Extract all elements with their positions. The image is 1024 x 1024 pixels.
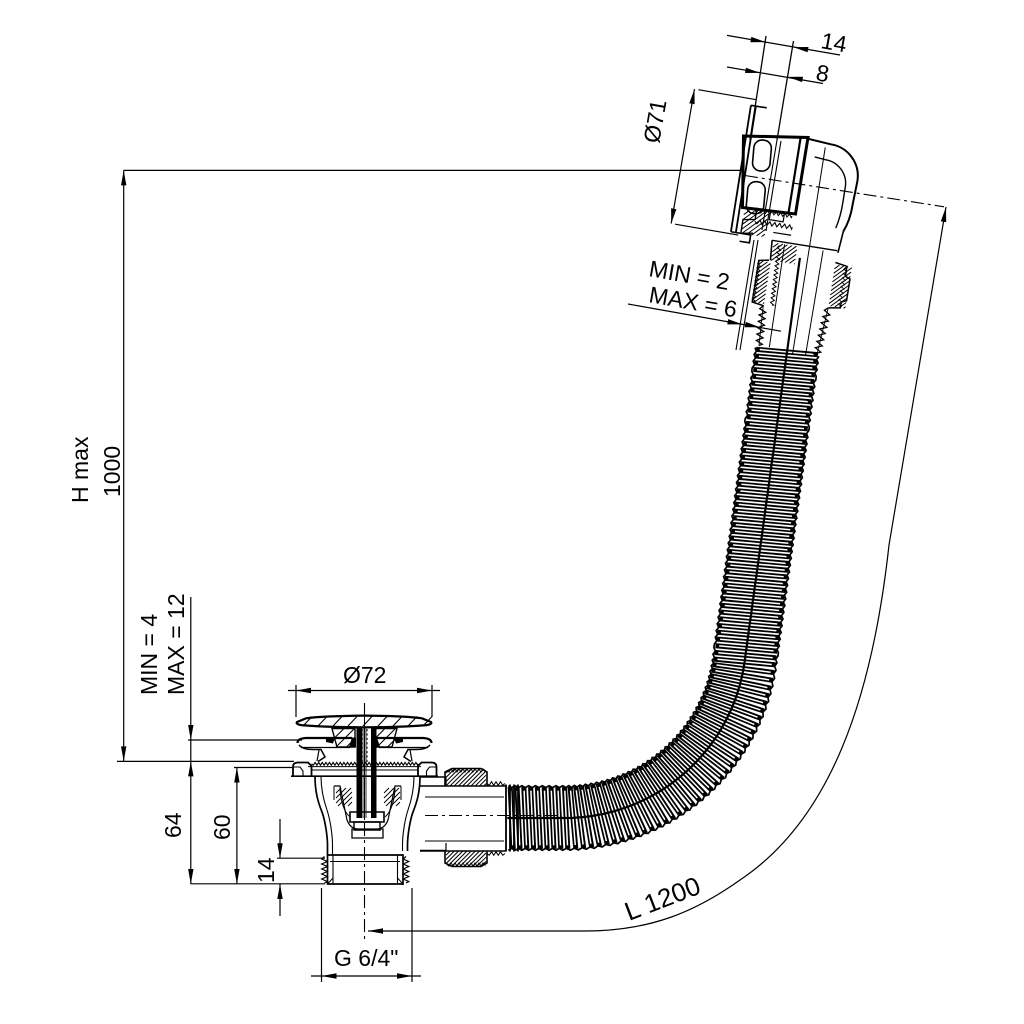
svg-text:14: 14 bbox=[253, 857, 279, 883]
svg-text:64: 64 bbox=[160, 812, 186, 838]
svg-text:60: 60 bbox=[209, 814, 235, 840]
svg-text:MAX = 12: MAX = 12 bbox=[163, 593, 189, 695]
svg-text:Ø72: Ø72 bbox=[343, 662, 386, 688]
svg-text:14: 14 bbox=[819, 27, 849, 57]
svg-text:MIN = 4: MIN = 4 bbox=[136, 614, 162, 695]
svg-text:1000: 1000 bbox=[99, 446, 125, 497]
svg-text:G 6/4": G 6/4" bbox=[334, 945, 398, 971]
svg-text:H max: H max bbox=[67, 436, 93, 503]
